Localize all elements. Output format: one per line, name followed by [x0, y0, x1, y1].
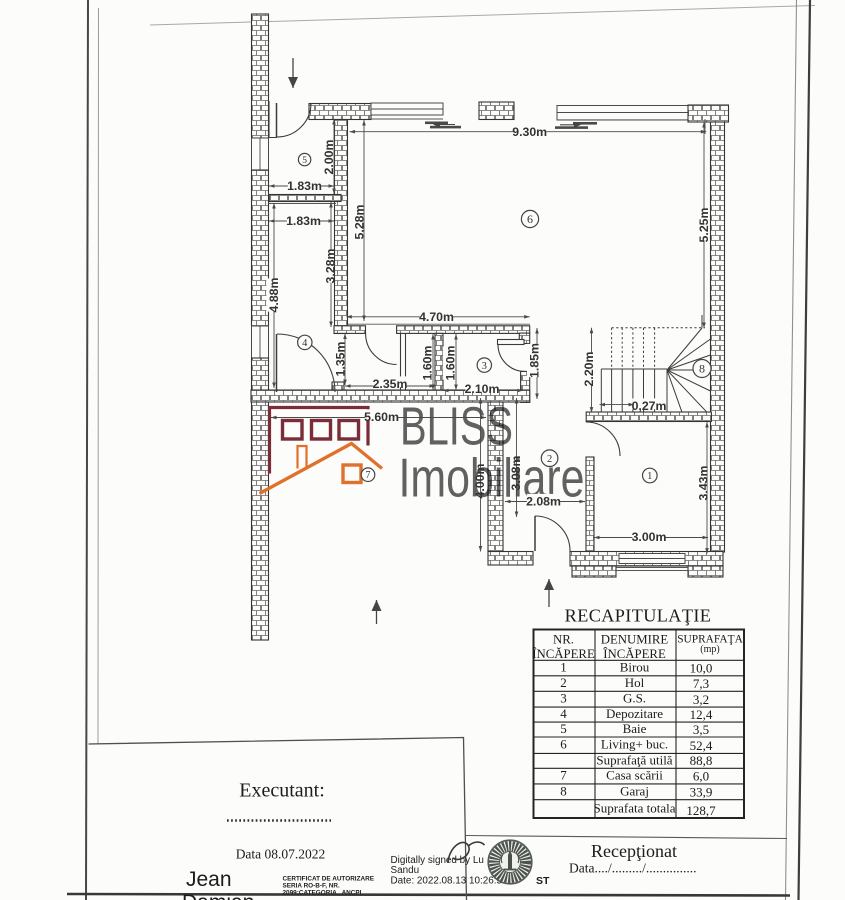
- svg-text:CERTIFICAT DE AUTORIZARE: CERTIFICAT DE AUTORIZARE: [283, 876, 375, 883]
- svg-text:2: 2: [547, 454, 552, 465]
- svg-text:SERIA RO-B-F, NR.: SERIA RO-B-F, NR.: [283, 883, 341, 890]
- svg-text:(mp): (mp): [700, 644, 719, 655]
- svg-text:4.70m: 4.70m: [419, 310, 454, 324]
- svg-text:Birou: Birou: [620, 660, 650, 675]
- svg-text:3,2: 3,2: [693, 692, 709, 707]
- svg-text:Recepţionat: Recepţionat: [591, 841, 677, 861]
- svg-text:3.28m: 3.28m: [324, 249, 338, 284]
- svg-text:Depozitare: Depozitare: [606, 706, 663, 721]
- svg-text:4: 4: [560, 706, 567, 721]
- svg-text:4: 4: [302, 338, 308, 349]
- svg-text:Hol: Hol: [625, 675, 645, 690]
- svg-text:2.00m: 2.00m: [322, 140, 336, 175]
- svg-text:1.83m: 1.83m: [287, 179, 322, 193]
- svg-text:6: 6: [527, 212, 533, 226]
- svg-text:2: 2: [560, 675, 567, 690]
- svg-text:Data..../........./...........: Data..../........./...............: [569, 861, 697, 876]
- svg-text:1: 1: [560, 660, 567, 675]
- svg-text:2.20m: 2.20m: [582, 352, 596, 387]
- svg-text:10,0: 10,0: [690, 661, 713, 676]
- svg-text:G.S.: G.S.: [623, 691, 646, 706]
- svg-text:33,9: 33,9: [690, 785, 713, 800]
- svg-text:128,7: 128,7: [686, 803, 716, 818]
- svg-text:ST: ST: [536, 875, 550, 887]
- svg-text:0,27m: 0,27m: [632, 399, 667, 413]
- svg-text:9.30m: 9.30m: [512, 125, 547, 139]
- svg-text:1.60m: 1.60m: [444, 346, 458, 381]
- svg-text:1.85m: 1.85m: [528, 343, 542, 378]
- svg-text:52,4: 52,4: [690, 738, 713, 753]
- svg-text:8: 8: [560, 783, 567, 798]
- svg-text:2.35m: 2.35m: [373, 377, 408, 391]
- svg-text:2.10m: 2.10m: [465, 382, 500, 396]
- svg-text:4.88m: 4.88m: [267, 278, 281, 313]
- svg-text:2099;CATEGORIA , ANCPI: 2099;CATEGORIA , ANCPI: [283, 890, 362, 897]
- svg-text:3.43m: 3.43m: [697, 466, 711, 501]
- svg-text:3.08m: 3.08m: [509, 456, 523, 491]
- svg-text:3.00m: 3.00m: [632, 530, 667, 544]
- svg-text:Garaj: Garaj: [620, 783, 649, 798]
- svg-text:5.25m: 5.25m: [697, 208, 711, 243]
- svg-text:5: 5: [302, 156, 307, 166]
- svg-text:DENUMIRE: DENUMIRE: [601, 633, 669, 647]
- svg-text:88,8: 88,8: [690, 753, 713, 768]
- svg-text:6,0: 6,0: [693, 769, 709, 784]
- svg-text:Executant:: Executant:: [239, 780, 325, 802]
- svg-text:5.28m: 5.28m: [353, 205, 367, 240]
- svg-text:5.60m: 5.60m: [364, 410, 399, 424]
- svg-text:NR.: NR.: [553, 633, 574, 647]
- svg-text:Suprafata totala: Suprafata totala: [594, 800, 676, 815]
- svg-text:1: 1: [647, 471, 652, 482]
- svg-text:2.08m: 2.08m: [526, 495, 561, 509]
- svg-text:3,5: 3,5: [693, 722, 709, 737]
- svg-text:6: 6: [560, 737, 567, 752]
- svg-text:7: 7: [366, 470, 371, 481]
- svg-text:Jean: Jean: [186, 868, 232, 891]
- svg-text:1.35m: 1.35m: [334, 342, 348, 377]
- svg-text:Date: 2022.08.13 10:26:5: Date: 2022.08.13 10:26:5: [391, 875, 503, 886]
- svg-text:1.60m: 1.60m: [421, 346, 435, 381]
- svg-text:Damian: Damian: [182, 891, 254, 900]
- svg-text:Data 08.07.2022: Data 08.07.2022: [236, 847, 326, 862]
- svg-text:Baie: Baie: [623, 721, 647, 736]
- svg-text:3: 3: [560, 691, 567, 706]
- svg-text:RECAPITULAŢIE: RECAPITULAŢIE: [565, 606, 712, 626]
- svg-text:7: 7: [560, 768, 567, 783]
- svg-text:3: 3: [482, 361, 487, 372]
- svg-text:4.00m: 4.00m: [473, 464, 487, 499]
- svg-text:1.83m: 1.83m: [286, 214, 321, 228]
- svg-text:Casa scării: Casa scării: [606, 768, 663, 783]
- svg-text:7,3: 7,3: [693, 676, 709, 691]
- svg-text:Suprafaţă utilă: Suprafaţă utilă: [596, 752, 672, 767]
- svg-text:Living+ buc.: Living+ buc.: [601, 737, 668, 752]
- svg-text:5: 5: [560, 721, 567, 736]
- svg-text:12,4: 12,4: [690, 707, 713, 722]
- svg-text:8: 8: [699, 362, 705, 376]
